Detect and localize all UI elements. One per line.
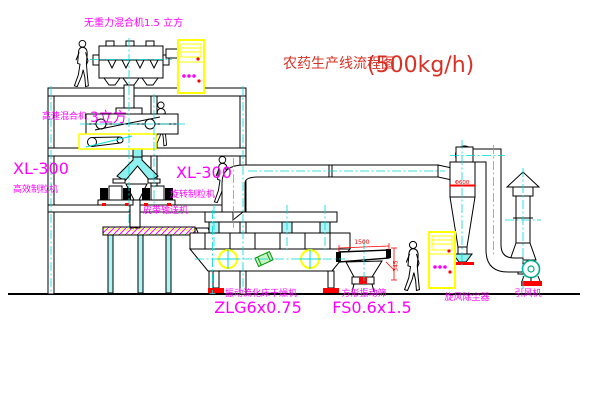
label-granulator-right-model: XL-300 bbox=[176, 163, 232, 182]
exhaust-duct bbox=[222, 165, 438, 212]
worker-ground bbox=[405, 241, 420, 290]
label-fan: 引风机 bbox=[514, 287, 541, 299]
label-floor2-mixer: 高速混合机 bbox=[42, 110, 87, 122]
control-cabinet-top bbox=[178, 40, 204, 93]
diagram-drawing: 农药生产线流程图 (500kg/h) 无重力混合机1.5 立方 高速混合机 3立… bbox=[0, 0, 600, 403]
gravity-free-mixer bbox=[93, 41, 178, 85]
label-granulator-right-name: 旋转制粒机 bbox=[170, 188, 215, 200]
label-cyclone: 旋风除尘器 bbox=[444, 291, 489, 303]
fan-housing bbox=[523, 261, 540, 278]
label-floor2-mixer-size: 3立方 bbox=[90, 110, 127, 126]
label-dryer-model: ZLG6x0.75 bbox=[214, 298, 302, 317]
dim-cyclone-diameter: Φ600 bbox=[455, 180, 470, 186]
fan-base bbox=[521, 281, 542, 286]
granulator-left bbox=[98, 186, 133, 206]
roof-slab bbox=[48, 88, 246, 96]
process-flow-diagram: 农药生产线流程图 (500kg/h) 无重力混合机1.5 立方 高速混合机 3立… bbox=[0, 0, 600, 403]
diagram-title-capacity: (500kg/h) bbox=[367, 53, 474, 78]
dryer-hood bbox=[205, 212, 337, 222]
dim-screen-height: 345 bbox=[393, 260, 400, 272]
control-cabinet-right bbox=[429, 232, 455, 288]
dryer-foot-right bbox=[323, 288, 339, 293]
worker-roof bbox=[74, 40, 88, 86]
label-granulator-left-name: 高效制粒机 bbox=[13, 183, 58, 195]
mixer-motor bbox=[166, 49, 178, 58]
label-belt-conveyor: 皮带输送机 bbox=[143, 204, 188, 216]
induced-draft-fan bbox=[521, 261, 542, 287]
chute-flange-left bbox=[113, 179, 125, 183]
dryer-foot-left bbox=[208, 288, 224, 293]
label-granulator-left-model: XL-300 bbox=[13, 159, 69, 178]
conveyor-belt bbox=[103, 227, 195, 235]
dim-screen-length: 1500 bbox=[354, 239, 369, 246]
label-screen-model: FS0.6x1.5 bbox=[332, 298, 411, 317]
label-top-mixer: 无重力混合机1.5 立方 bbox=[84, 16, 183, 29]
